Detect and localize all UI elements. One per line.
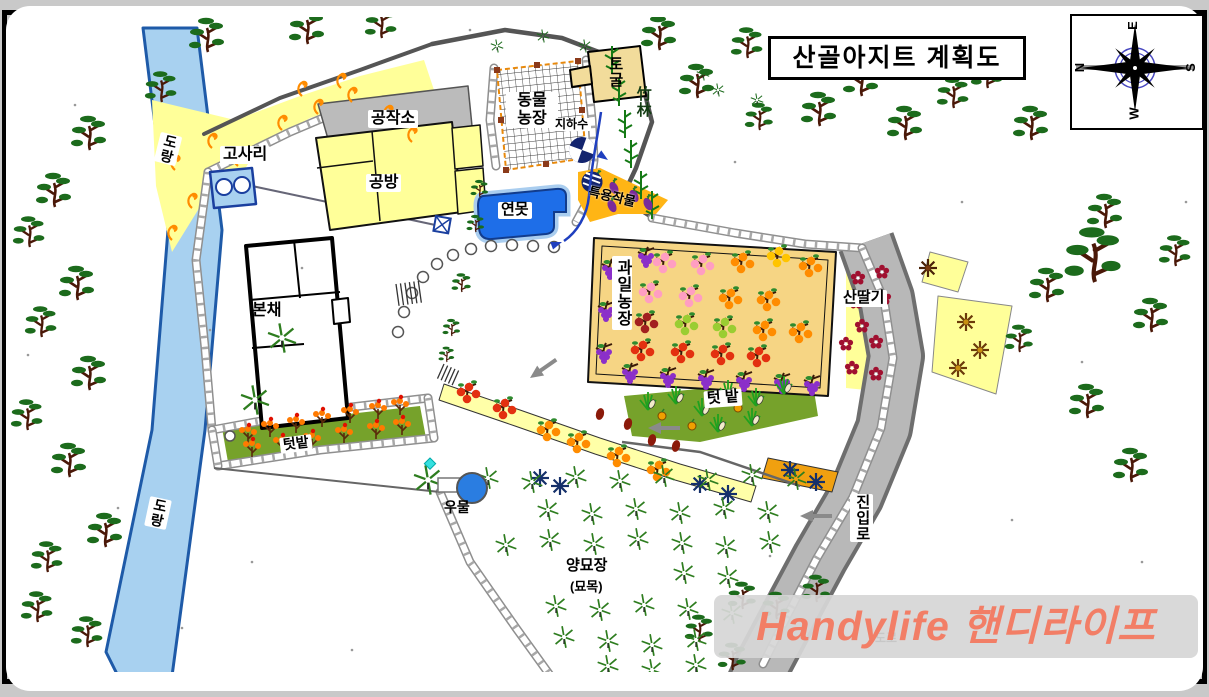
plan-title: 산골아지트 계획도 — [768, 36, 1026, 80]
chestnut-flower-icon — [551, 477, 569, 495]
pine-tree-icon — [71, 116, 106, 150]
pine-tree-icon — [937, 77, 969, 108]
seedling-icon — [554, 626, 575, 648]
compass-box: E N S W — [1070, 14, 1204, 130]
chestnut-flower-icon — [719, 485, 737, 503]
seedling-icon — [590, 599, 611, 621]
pine-tree-icon — [801, 92, 836, 126]
compass-south-label: S — [1183, 63, 1198, 72]
stepping-stone-icon — [486, 241, 497, 252]
pine-tree-icon — [59, 266, 94, 300]
seedling-icon — [686, 654, 707, 676]
drain-icon — [433, 216, 450, 233]
pine-tree-icon — [887, 106, 922, 140]
seedling-icon — [582, 503, 603, 525]
compass-north-label: N — [1072, 63, 1087, 72]
pine-tree-icon — [21, 591, 53, 622]
seedling-icon — [628, 528, 649, 550]
pine-tree-icon — [745, 103, 773, 130]
label-nursery-line1: 양묘장 — [566, 558, 607, 575]
stepping-stone-icon — [507, 240, 518, 251]
label-craft-room: 공방 — [366, 174, 401, 192]
seedling-icon — [598, 630, 619, 652]
seedling-icon — [712, 84, 724, 97]
seedling-icon — [642, 659, 663, 681]
pine-tree-icon — [452, 273, 471, 292]
pine-tree-icon — [11, 399, 43, 430]
pine-tree-icon — [25, 306, 57, 337]
pine-tree-icon — [1013, 106, 1048, 140]
pine-tree-icon — [1113, 448, 1148, 482]
seedling-icon — [758, 501, 779, 523]
pine-tree-icon — [13, 216, 45, 247]
seedling-icon — [610, 470, 631, 492]
label-fruit-farm: 과일농장 — [612, 256, 632, 330]
label-animal-farm-line1: 동물 — [517, 92, 546, 109]
label-access-road: 진입로 — [850, 494, 873, 542]
stepping-stone-icon — [393, 327, 404, 338]
chestnut-flower-icon — [949, 359, 967, 377]
pine-tree-icon — [71, 616, 103, 647]
pine-tree-icon — [641, 16, 676, 50]
chestnut-flower-icon — [971, 341, 989, 359]
label-fern: 고사리 — [220, 146, 270, 164]
seedling-icon — [714, 497, 735, 519]
seedling-icon — [491, 40, 503, 53]
seedling-icon — [584, 533, 605, 555]
seedling-icon — [496, 534, 517, 556]
pine-tree-icon — [1069, 384, 1104, 418]
label-animal-farm: 동물 농장 — [506, 92, 558, 128]
site-plan-canvas — [0, 0, 1209, 697]
shrub-icon — [671, 439, 682, 453]
seedling-icon — [670, 502, 691, 524]
stepping-stone-icon — [448, 250, 459, 261]
direction-arrow-icon — [527, 355, 560, 383]
pine-tree-icon — [443, 319, 461, 336]
seedling-icon — [674, 562, 695, 584]
pine-tree-icon — [51, 443, 86, 477]
label-veg-garden-right: 텃 밭 — [703, 389, 742, 408]
stepping-stone-icon — [432, 259, 443, 270]
pine-tree-icon — [1029, 268, 1064, 302]
pine-tree-icon — [189, 18, 224, 52]
label-nursery-line2: (묘목) — [570, 580, 603, 595]
compass-east-label: E — [1125, 21, 1140, 30]
seedling-icon — [716, 536, 737, 558]
seedling-icon — [598, 655, 619, 677]
seedling-icon — [566, 466, 587, 488]
label-pond: 연못 — [498, 202, 532, 219]
stepping-stone-icon — [418, 272, 429, 283]
label-main-house: 본채 — [252, 302, 281, 320]
stairs-icon — [437, 364, 458, 385]
stepping-stone-icon — [528, 241, 539, 252]
pine-tree-icon — [438, 347, 454, 362]
stepping-stone-icon — [466, 244, 477, 255]
label-animal-farm-line2: 농장 — [517, 110, 546, 127]
pine-tree-icon — [1065, 227, 1121, 282]
pine-tree-icon — [731, 27, 763, 58]
seedling-icon — [626, 498, 647, 520]
stepping-stone-icon — [399, 307, 410, 318]
seedling-icon — [546, 595, 567, 617]
label-groundwater: 지하수 — [552, 118, 591, 131]
label-cave: 토굴 — [606, 56, 623, 88]
pine-tree-icon — [289, 10, 324, 44]
watermark: Handylife 핸디라이프 — [714, 595, 1198, 658]
label-bamboo-forest: 竹林 — [634, 86, 651, 118]
pine-tree-icon — [1133, 298, 1168, 332]
chestnut-flower-icon — [919, 259, 937, 277]
pine-tree-icon — [31, 541, 63, 572]
seedling-icon — [634, 594, 655, 616]
bamboo-icon — [618, 110, 632, 138]
seedling-icon — [760, 531, 781, 553]
pine-tree-icon — [71, 356, 106, 390]
label-wild-raspberry: 산딸기 — [840, 290, 887, 307]
pine-tree-icon — [1087, 194, 1122, 228]
seedling-icon — [642, 634, 663, 656]
pine-tree-icon — [365, 7, 397, 38]
pine-tree-icon — [1005, 325, 1033, 352]
shrub-icon — [595, 407, 606, 421]
seedling-icon — [686, 629, 707, 651]
pine-tree-icon — [1159, 235, 1191, 266]
compass-west-label: W — [1127, 107, 1142, 119]
seedling-icon — [538, 499, 559, 521]
pine-tree-icon — [87, 513, 122, 547]
seedling-icon — [672, 532, 693, 554]
label-well: 우물 — [444, 500, 470, 516]
chestnut-flower-icon — [957, 313, 975, 331]
chestnut-flower-icon — [807, 473, 825, 491]
seedling-icon — [540, 529, 561, 551]
pine-tree-icon — [679, 64, 714, 98]
label-workshop: 공작소 — [368, 110, 418, 128]
pine-tree-icon — [36, 173, 71, 207]
